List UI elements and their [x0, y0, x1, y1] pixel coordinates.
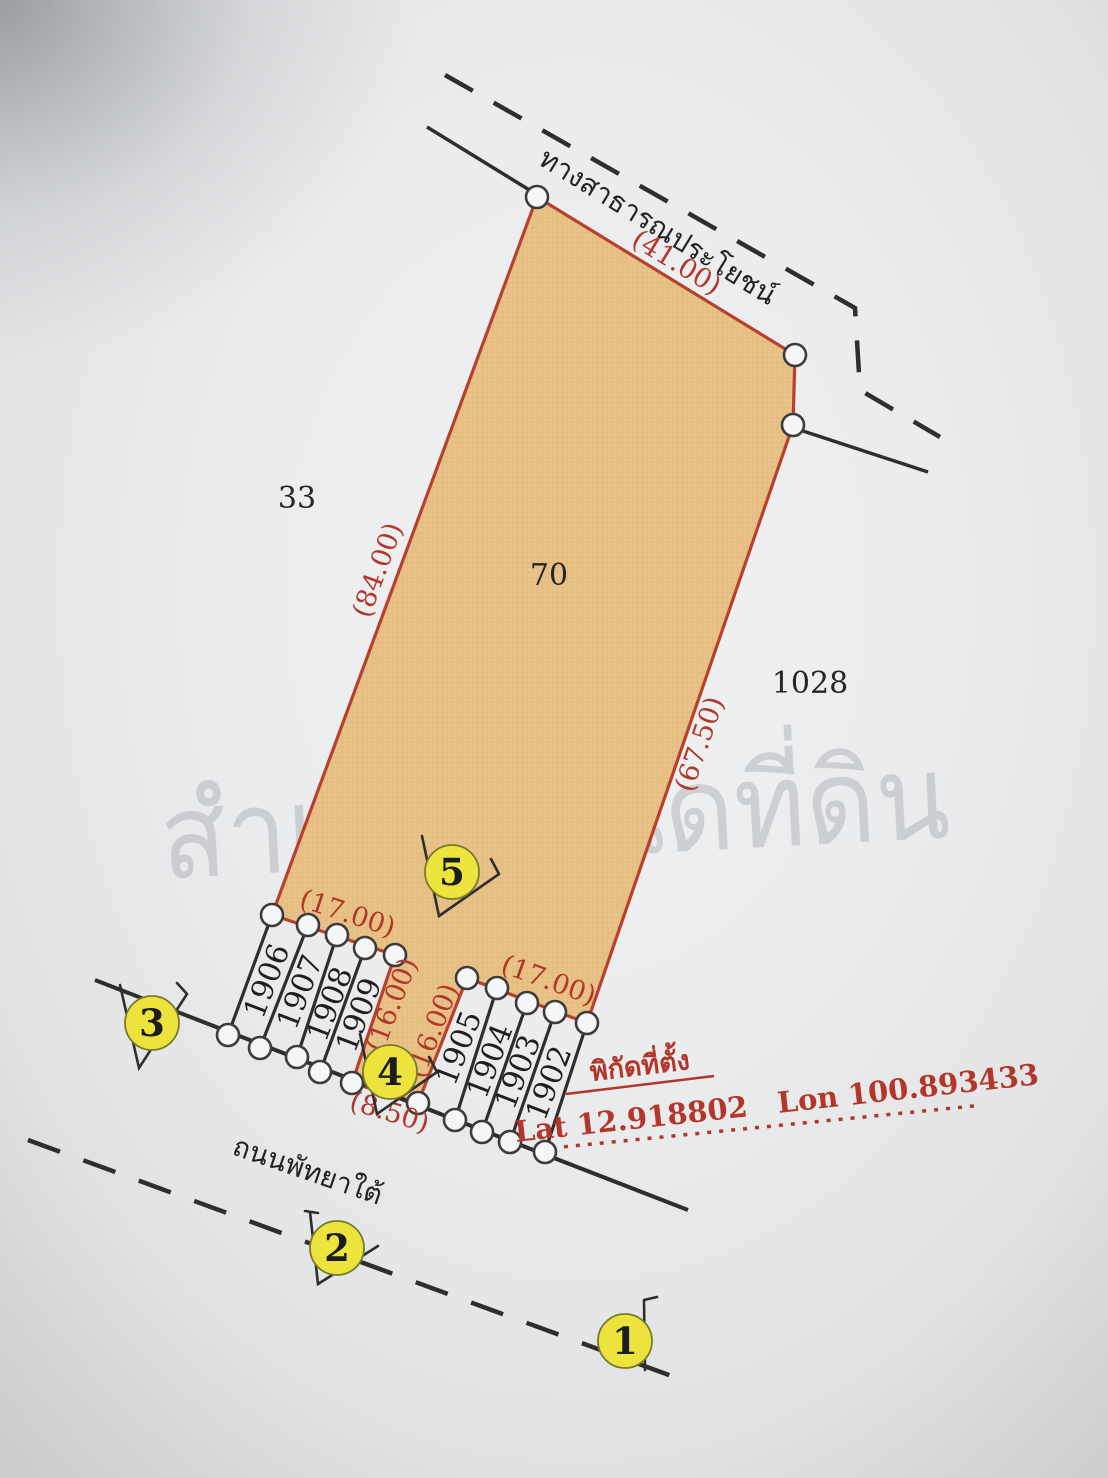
plot-map-canvas: สำเนาโฉนดที่ดิน ทางสาธารณประโยชน์ ถนนพัท… [0, 0, 1108, 1478]
marker-2-number: 2 [324, 1226, 350, 1270]
boundary-vertex [576, 1012, 598, 1034]
marker-3-number: 3 [139, 1001, 165, 1045]
boundary-vertex [444, 1109, 466, 1131]
boundary-vertex [782, 414, 804, 436]
marker-1-number: 1 [612, 1319, 638, 1363]
marker-4-number: 4 [377, 1050, 403, 1094]
parcel-33-label: 33 [278, 481, 316, 516]
boundary-vertex [516, 992, 538, 1014]
boundary-vertex [456, 967, 478, 989]
boundary-vertex [309, 1061, 331, 1083]
boundary-vertex [217, 1024, 239, 1046]
boundary-vertex [354, 937, 376, 959]
marker-5-number: 5 [439, 850, 465, 894]
boundary-vertex [471, 1121, 493, 1143]
photo-corner-shadow [0, 0, 420, 360]
boundary-vertex [249, 1037, 271, 1059]
boundary-vertex [286, 1046, 308, 1068]
boundary-vertex [784, 344, 806, 366]
boundary-vertex [544, 1001, 566, 1023]
boundary-vertex [526, 186, 548, 208]
land-deed-survey-photo: สำเนาโฉนดที่ดิน ทางสาธารณประโยชน์ ถนนพัท… [0, 0, 1108, 1478]
boundary-vertex [261, 904, 283, 926]
parcel-1028-label: 1028 [772, 666, 848, 701]
parcel-70-label: 70 [530, 558, 568, 593]
